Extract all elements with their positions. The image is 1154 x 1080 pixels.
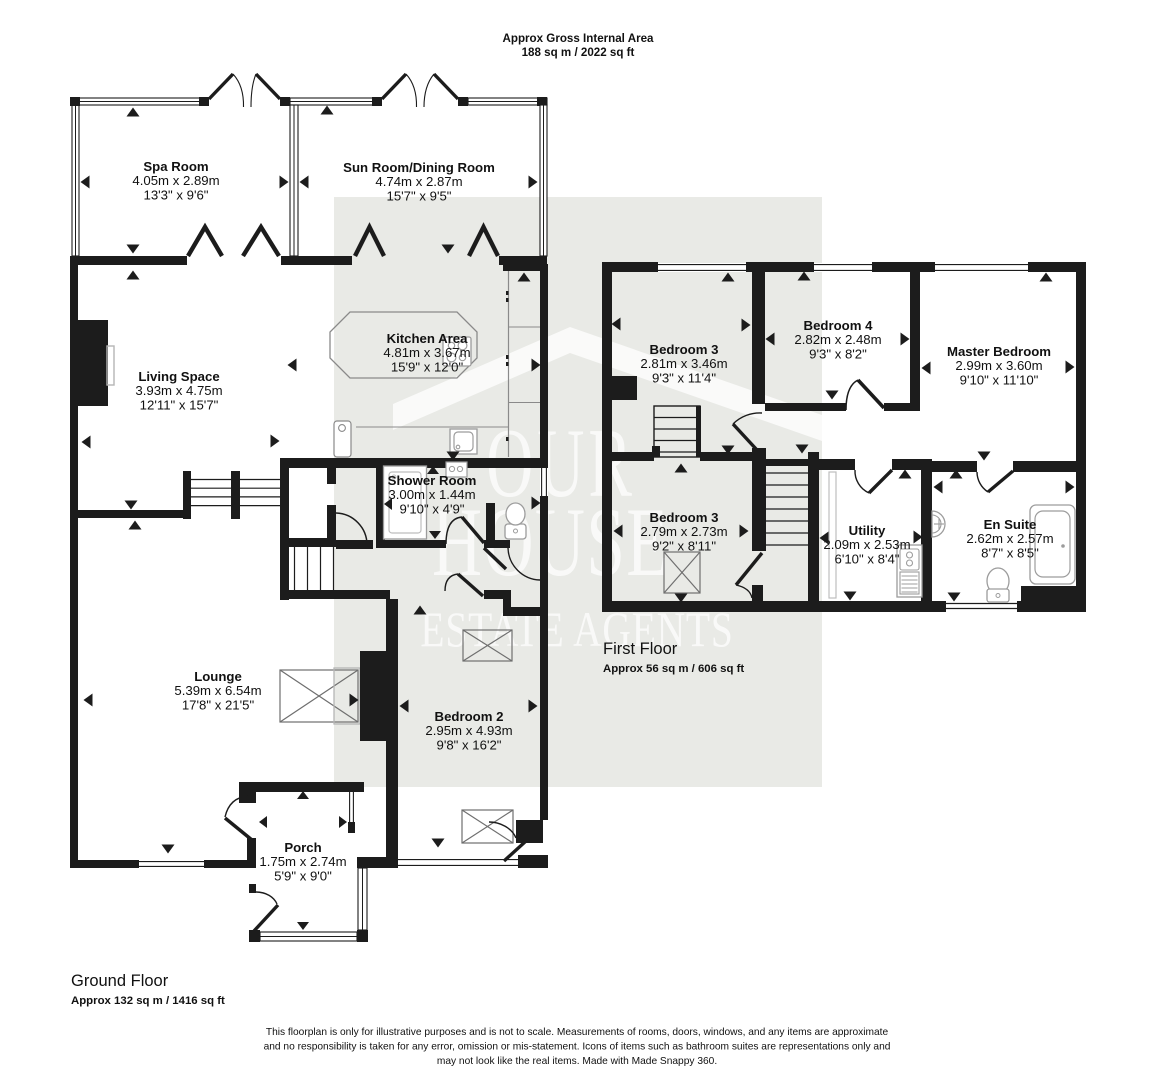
svg-text:2.82m x 2.48m: 2.82m x 2.48m <box>794 332 881 347</box>
svg-text:9'2" x 8'11": 9'2" x 8'11" <box>652 538 716 553</box>
svg-text:Spa Room: Spa Room <box>143 159 208 174</box>
svg-text:Bedroom 4: Bedroom 4 <box>804 318 874 333</box>
svg-text:9'3" x 8'2": 9'3" x 8'2" <box>809 346 867 361</box>
svg-text:First Floor: First Floor <box>603 640 678 658</box>
svg-text:may not look like the real ite: may not look like the real items. Made w… <box>437 1056 717 1067</box>
svg-text:Bedroom 3: Bedroom 3 <box>650 342 719 357</box>
svg-text:Sun Room/Dining Room: Sun Room/Dining Room <box>343 160 495 175</box>
svg-text:8'7" x 8'5": 8'7" x 8'5" <box>981 545 1039 560</box>
svg-text:15'7" x 9'5": 15'7" x 9'5" <box>387 188 452 203</box>
svg-text:15'9" x 12'0": 15'9" x 12'0" <box>391 359 464 374</box>
svg-text:Porch: Porch <box>284 840 321 855</box>
svg-text:Approx 56 sq m / 606 sq ft: Approx 56 sq m / 606 sq ft <box>603 663 744 675</box>
svg-text:Bedroom 3: Bedroom 3 <box>650 510 719 525</box>
svg-text:Bedroom 2: Bedroom 2 <box>435 709 504 724</box>
svg-text:188 sq m / 2022 sq ft: 188 sq m / 2022 sq ft <box>522 46 635 59</box>
svg-text:13'3" x 9'6": 13'3" x 9'6" <box>144 187 209 202</box>
svg-text:Lounge: Lounge <box>194 669 242 684</box>
svg-text:12'11" x 15'7": 12'11" x 15'7" <box>140 397 219 412</box>
svg-text:3.93m x 4.75m: 3.93m x 4.75m <box>135 383 222 398</box>
svg-text:2.95m x 4.93m: 2.95m x 4.93m <box>425 723 512 738</box>
svg-text:9'3" x 11'4": 9'3" x 11'4" <box>652 370 716 385</box>
svg-text:Approx Gross Internal Area: Approx Gross Internal Area <box>503 32 655 45</box>
svg-text:and no responsibility is taken: and no responsibility is taken for any e… <box>264 1042 891 1053</box>
svg-text:Approx 132 sq m / 1416 sq ft: Approx 132 sq m / 1416 sq ft <box>71 995 225 1007</box>
svg-text:Master Bedroom: Master Bedroom <box>947 344 1051 359</box>
svg-text:4.81m x 3.67m: 4.81m x 3.67m <box>383 345 470 360</box>
svg-text:2.09m x 2.53m: 2.09m x 2.53m <box>823 537 910 552</box>
svg-text:Utility: Utility <box>849 523 886 538</box>
svg-text:5'9" x 9'0": 5'9" x 9'0" <box>274 868 332 883</box>
svg-text:6'10" x 8'4": 6'10" x 8'4" <box>835 551 900 566</box>
svg-text:2.99m x 3.60m: 2.99m x 3.60m <box>955 358 1042 373</box>
svg-text:4.74m x 2.87m: 4.74m x 2.87m <box>375 174 462 189</box>
svg-text:Kitchen Area: Kitchen Area <box>387 331 469 346</box>
svg-text:9'8" x 16'2": 9'8" x 16'2" <box>437 737 502 752</box>
svg-text:9'10" x 4'9": 9'10" x 4'9" <box>400 501 465 516</box>
svg-text:Shower Room: Shower Room <box>388 473 477 488</box>
svg-text:2.81m x 3.46m: 2.81m x 3.46m <box>640 356 727 371</box>
svg-text:2.79m x 2.73m: 2.79m x 2.73m <box>640 524 727 539</box>
svg-text:4.05m x 2.89m: 4.05m x 2.89m <box>132 173 219 188</box>
svg-text:1.75m x 2.74m: 1.75m x 2.74m <box>259 854 346 869</box>
svg-text:Ground Floor: Ground Floor <box>71 972 169 990</box>
svg-text:17'8" x 21'5": 17'8" x 21'5" <box>182 697 255 712</box>
svg-text:Living Space: Living Space <box>138 369 219 384</box>
svg-text:2.62m x 2.57m: 2.62m x 2.57m <box>966 531 1053 546</box>
svg-text:This floorplan is only for ill: This floorplan is only for illustrative … <box>266 1027 889 1038</box>
svg-text:En Suite: En Suite <box>984 517 1037 532</box>
svg-text:9'10" x 11'10": 9'10" x 11'10" <box>960 372 1039 387</box>
svg-text:3.00m x 1.44m: 3.00m x 1.44m <box>388 487 475 502</box>
svg-text:5.39m x 6.54m: 5.39m x 6.54m <box>174 683 261 698</box>
